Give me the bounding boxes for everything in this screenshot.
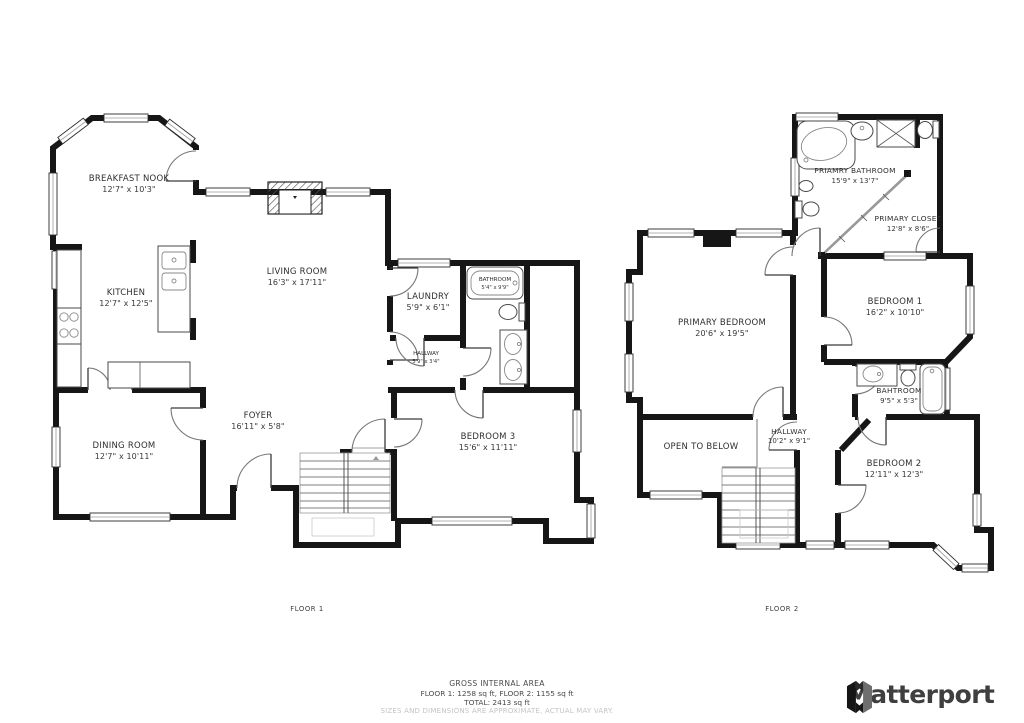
room-label-bedroom1: BEDROOM 1: [868, 297, 923, 307]
floor2-plan: PRIAMRY BATHROOM 15'9" x 13'7" PRIMARY C…: [625, 113, 991, 613]
room-label-bathroom1: BATHROOM: [479, 277, 512, 283]
room-label-laundry: LAUNDRY: [407, 292, 450, 302]
room-dims-primary-bedroom: 20'6" x 19'5": [695, 329, 748, 338]
room-dims-bedroom2: 12'11" x 12'3": [865, 470, 924, 479]
matterport-logo: Matterport: [846, 680, 994, 709]
room-dims-hallway2: 10'2" x 9'1": [768, 437, 810, 445]
room-label-living-room: LIVING ROOM: [267, 267, 328, 277]
floor-areas-line: FLOOR 1: 1258 sq ft, FLOOR 2: 1155 sq ft: [197, 689, 797, 698]
floor1-caption: FLOOR 1: [290, 605, 324, 613]
room-label-dining-room: DINING ROOM: [93, 441, 156, 451]
room-label-foyer: FOYER: [244, 411, 273, 421]
room-label-primary-bathroom: PRIAMRY BATHROOM: [814, 166, 896, 175]
room-dims-laundry: 5'9" x 6'1": [406, 303, 449, 312]
floorplan-page: BREAKFAST NOOK 12'7" x 10'3" KITCHEN 12'…: [0, 0, 1024, 723]
room-label-hallway2: HALLWAY: [771, 427, 807, 436]
room-dims-hallway1: 5'9" x 3'4": [412, 359, 439, 365]
room-dims-dining-room: 12'7" x 10'11": [95, 452, 154, 461]
floor2-caption: FLOOR 2: [765, 605, 799, 613]
room-label-bahtroom: BAHTROOM: [876, 386, 921, 395]
total-area-line: TOTAL: 2413 sq ft: [197, 698, 797, 707]
floor1-plan: BREAKFAST NOOK 12'7" x 10'3" KITCHEN 12'…: [49, 114, 595, 613]
room-label-primary-bedroom: PRIMARY BEDROOM: [678, 318, 766, 328]
floorplan-canvas: BREAKFAST NOOK 12'7" x 10'3" KITCHEN 12'…: [0, 0, 1024, 723]
room-label-open-to-below: OPEN TO BELOW: [664, 442, 739, 452]
room-dims-bathroom1: 5'4" x 9'9": [481, 285, 508, 291]
room-dims-kitchen: 12'7" x 12'5": [99, 299, 152, 308]
room-label-primary-closet: PRIMARY CLOSET: [875, 214, 942, 223]
area-summary: GROSS INTERNAL AREA FLOOR 1: 1258 sq ft,…: [197, 679, 797, 717]
room-dims-bahtroom: 9'5" x 5'3": [880, 397, 918, 405]
chimney: [703, 233, 731, 247]
room-dims-bedroom1: 16'2" x 10'10": [866, 308, 925, 317]
fireplace: [268, 182, 322, 214]
room-dims-foyer: 16'11" x 5'8": [231, 422, 284, 431]
room-dims-primary-bathroom: 15'9" x 13'7": [832, 177, 879, 185]
gross-internal-area-title: GROSS INTERNAL AREA: [197, 679, 797, 689]
room-label-breakfast-nook: BREAKFAST NOOK: [89, 174, 170, 184]
room-label-bedroom2: BEDROOM 2: [867, 459, 922, 469]
disclaimer-text: SIZES AND DIMENSIONS ARE APPROXIMATE, AC…: [197, 707, 797, 717]
room-label-bedroom3: BEDROOM 3: [461, 432, 516, 442]
matterport-m-icon: [846, 680, 873, 714]
room-dims-primary-closet: 12'8" x 8'6": [887, 225, 929, 233]
room-label-hallway1: HALLWAY: [413, 351, 439, 357]
room-label-kitchen: KITCHEN: [107, 288, 146, 298]
room-dims-living-room: 16'3" x 17'11": [268, 278, 327, 287]
room-dims-breakfast-nook: 12'7" x 10'3": [102, 185, 155, 194]
room-dims-bedroom3: 15'6" x 11'11": [459, 443, 518, 452]
